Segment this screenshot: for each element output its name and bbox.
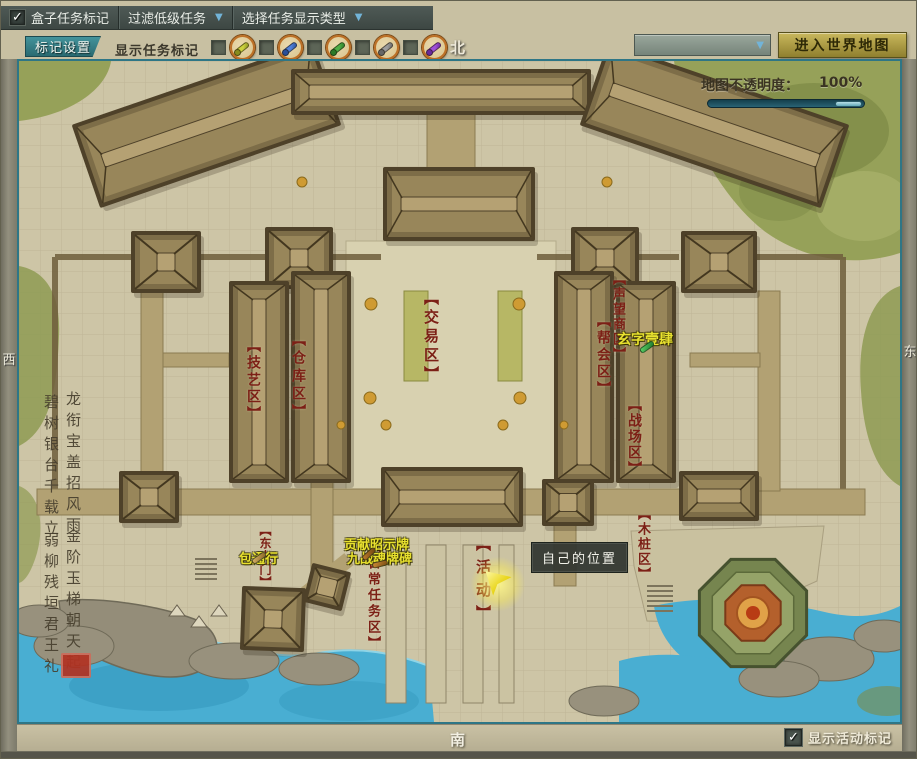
check-icon: ✓ (788, 731, 799, 744)
show-activity-marks-label: 显示活动标记 (808, 728, 892, 747)
checkbox-icon[interactable] (355, 40, 370, 55)
map-canvas[interactable]: 地图不透明度： 100% 【交易区】 【技艺区】 【仓库区】 【声望商区】 【帮… (17, 59, 902, 724)
map-opacity-slider[interactable] (707, 99, 865, 108)
yellow-scroll-icon (230, 35, 255, 60)
checkbox-icon[interactable] (307, 40, 322, 55)
task-display-type-dropdown[interactable]: 选择任务显示类型 ▼ (233, 6, 372, 29)
checkbox-icon[interactable] (259, 40, 274, 55)
filter-low-tasks-label: 过滤低级任务 (128, 8, 206, 27)
show-activity-marks-checkbox-group[interactable]: ✓ 显示活动标记 (785, 728, 892, 747)
task-mark-toggle-gray[interactable] (355, 35, 399, 60)
checkbox-checked-icon[interactable]: ✓ (785, 729, 802, 746)
map-terrain (19, 61, 900, 722)
compass-north-label: 北 (450, 37, 465, 58)
mark-settings-button[interactable]: 标记设置 (25, 36, 101, 57)
tan-scroll-map-icon[interactable] (251, 555, 269, 569)
area-label-warehouse: 【仓库区】 (291, 332, 305, 422)
blue-scroll-icon (278, 35, 303, 60)
enter-world-map-button[interactable]: 进入世界地图 (778, 32, 907, 58)
area-label-craft: 【技艺区】 (246, 338, 260, 423)
slider-handle[interactable] (835, 101, 862, 107)
task-mark-toggle-green[interactable] (307, 35, 351, 60)
filter-low-tasks-dropdown[interactable]: 过滤低级任务 ▼ (119, 6, 232, 29)
checkbox-icon[interactable] (403, 40, 418, 55)
compass-east-label: 东 (902, 341, 917, 360)
compass-west-label: 西 (1, 349, 17, 368)
map-footer-bar: 南 ✓ 显示活动标记 (17, 724, 902, 751)
map-opacity-control: 地图不透明度： 100% (701, 75, 891, 115)
top-toolbar: ✓ 盒子任务标记 过滤低级任务 ▼ 选择任务显示类型 ▼ (1, 6, 433, 30)
player-position-tooltip: 自己的位置 (531, 542, 628, 573)
task-display-type-label: 选择任务显示类型 (242, 8, 346, 27)
gray-scroll-icon (374, 35, 399, 60)
map-west-edge: 西 (1, 59, 17, 751)
area-label-battlefield: 【战场区】 (627, 397, 641, 477)
map-east-edge: 东 (902, 59, 917, 751)
task-mark-toggle-blue[interactable] (259, 35, 303, 60)
region-select-dropdown[interactable]: ▼ (634, 34, 771, 56)
task-mark-toggle-purple[interactable] (403, 35, 447, 60)
chevron-down-icon: ▼ (756, 40, 764, 51)
checkbox-checked-icon[interactable]: ✓ (10, 10, 25, 25)
box-task-label: 盒子任务标记 (31, 8, 109, 27)
checkbox-icon[interactable] (211, 40, 226, 55)
map-opacity-label: 地图不透明度： (701, 75, 799, 95)
area-label-trade: 【交易区】 (423, 290, 438, 385)
box-task-checkbox-group[interactable]: ✓ 盒子任务标记 (1, 6, 118, 29)
window-bottom-edge (1, 751, 917, 759)
poem-line: 碧树银台千载立 (43, 394, 58, 541)
check-icon: ✓ (12, 11, 23, 24)
area-label-dummy: 【木桩区】 (636, 507, 649, 582)
chevron-down-icon: ▼ (215, 12, 223, 23)
game-map-window: ✓ 盒子任务标记 过滤低级任务 ▼ 选择任务显示类型 ▼ 标记设置 显示任务标记 (0, 0, 917, 759)
compass-south-label: 南 (450, 729, 465, 750)
brown-scroll-map-icon[interactable] (372, 561, 390, 575)
chevron-down-icon: ▼ (355, 12, 363, 23)
purple-scroll-icon (422, 35, 447, 60)
area-label-guild: 【帮会区】 (596, 313, 610, 398)
task-mark-toggle-yellow[interactable] (211, 35, 255, 60)
seal-stamp (61, 653, 91, 678)
map-opacity-value: 100% (819, 75, 862, 91)
poem-line: 龙衔宝盖招风雨 (65, 391, 80, 538)
show-task-marks-label: 显示任务标记 (115, 40, 199, 59)
player-marker-glow (471, 557, 525, 611)
green-scroll-icon (326, 35, 351, 60)
poem-line: 弱柳残垣君王礼 (43, 532, 58, 679)
green-scroll-map-icon[interactable] (639, 344, 657, 358)
